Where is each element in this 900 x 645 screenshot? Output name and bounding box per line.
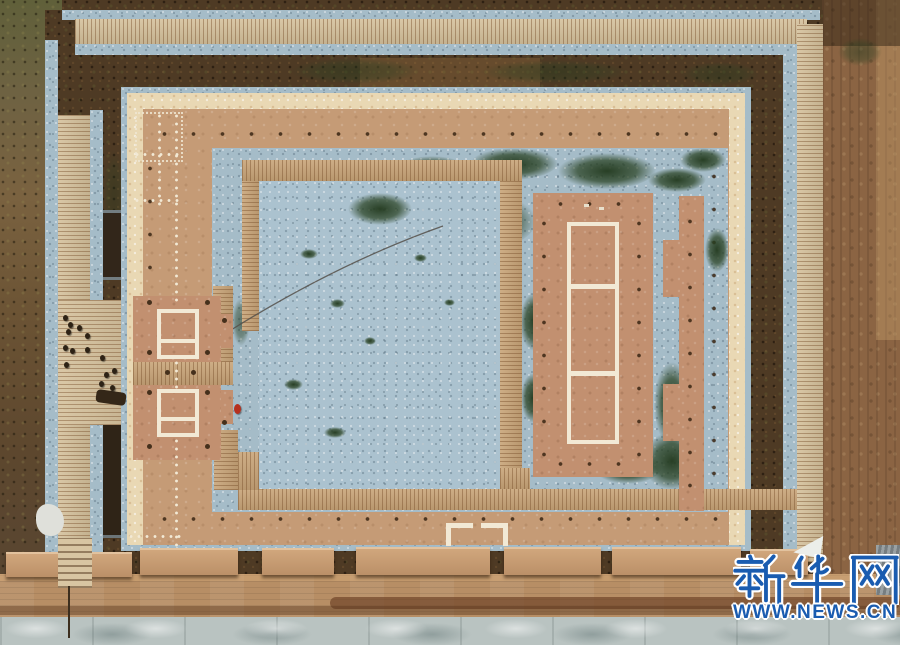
survey-dotted-cross-2 [133, 199, 179, 202]
person-dot [63, 315, 68, 321]
survey-dotted-line-2 [158, 112, 161, 207]
survey-pole [68, 586, 70, 638]
post-hole [147, 300, 152, 305]
south-gate-marker-right-v [503, 523, 508, 546]
post-hole-column-west [147, 152, 153, 292]
post-hole [165, 370, 170, 375]
person-dot [63, 345, 68, 351]
post-hole [222, 420, 227, 425]
white-tarp [36, 504, 64, 536]
inner-boardwalk-east [500, 181, 522, 490]
wall-block-segment [140, 548, 238, 575]
post-hole-column-east [711, 160, 717, 505]
survey-rope-line [225, 212, 450, 342]
survey-dotted-line-south [175, 437, 178, 549]
post-hole-row-south [150, 516, 730, 522]
post-hole [205, 300, 210, 305]
boardwalk-north [75, 19, 807, 44]
west-gate-boardwalk-crossing [133, 362, 233, 385]
xinhua-url-text: WWW.NEWS.CN [733, 602, 897, 624]
west-gate-frame-north-rung [157, 339, 199, 343]
west-gate-frame-south-rung [157, 417, 199, 421]
boardwalk-east [797, 24, 823, 562]
survey-dotted-cross-3 [127, 535, 181, 538]
east-hall-frame-rung-1 [567, 284, 619, 289]
xinhua-watermark: 新华网 WWW.NEWS.CN [712, 550, 900, 640]
east-colonnade-post-holes [687, 205, 693, 505]
post-hole [191, 370, 196, 375]
wall-block-segment [504, 547, 601, 575]
gravel-strip-west-outer [45, 40, 58, 560]
wall-block-segment [356, 547, 490, 575]
east-hall-post-holes-left [541, 207, 547, 469]
wall-block-segment [262, 548, 334, 575]
gravel-strip-east-inner [783, 44, 797, 560]
east-colonnade-bump-2 [663, 384, 680, 441]
east-hall-frame-rung-2 [567, 371, 619, 376]
person-dot [100, 355, 105, 361]
east-hall-post-holes-top [546, 201, 638, 207]
person-dot [64, 362, 69, 368]
post-hole [222, 318, 227, 323]
person-dot [66, 329, 71, 335]
post-hole [147, 350, 152, 355]
east-colonnade-bump-1 [663, 240, 680, 297]
person-dot [85, 347, 90, 353]
aerial-site-photo: 新华网 WWW.NEWS.CN [0, 0, 900, 645]
post-hole [147, 444, 152, 449]
east-hall-post-holes-bottom [546, 461, 638, 467]
post-hole [205, 444, 210, 449]
xinhua-logo-glyphs [733, 554, 899, 605]
survey-dotted-cross-1 [133, 153, 179, 156]
person-dot [77, 325, 82, 331]
person-dot [112, 368, 117, 374]
person-dot [104, 372, 109, 378]
post-hole [205, 390, 210, 395]
east-hall-foundation-frame [567, 222, 619, 444]
post-hole-row-north [150, 131, 730, 137]
inner-boardwalk-north [242, 160, 522, 181]
person-in-red [234, 404, 241, 414]
person-dot [68, 322, 73, 328]
east-hall-post-holes-right [636, 207, 642, 469]
post-hole [205, 350, 210, 355]
post-hole [147, 390, 152, 395]
inner-boardwalk-south [238, 489, 797, 510]
person-dot [99, 381, 104, 387]
person-dot [110, 385, 115, 391]
survey-dotted-line-main [175, 112, 178, 306]
boardwalk-stairs [58, 538, 92, 588]
west-gate-foundation-frame-north [157, 309, 199, 359]
east-hall-white-speck [584, 204, 589, 207]
east-hall-white-speck [599, 207, 604, 210]
person-dot [85, 333, 90, 339]
west-gate-tab-south [221, 390, 233, 424]
south-gate-marker-left-v [446, 523, 451, 546]
person-dot [70, 348, 75, 354]
west-gate-foundation-frame-south [157, 389, 199, 437]
survey-dotted-line-mid [175, 359, 178, 389]
gravel-strip-top-inner [75, 44, 795, 55]
